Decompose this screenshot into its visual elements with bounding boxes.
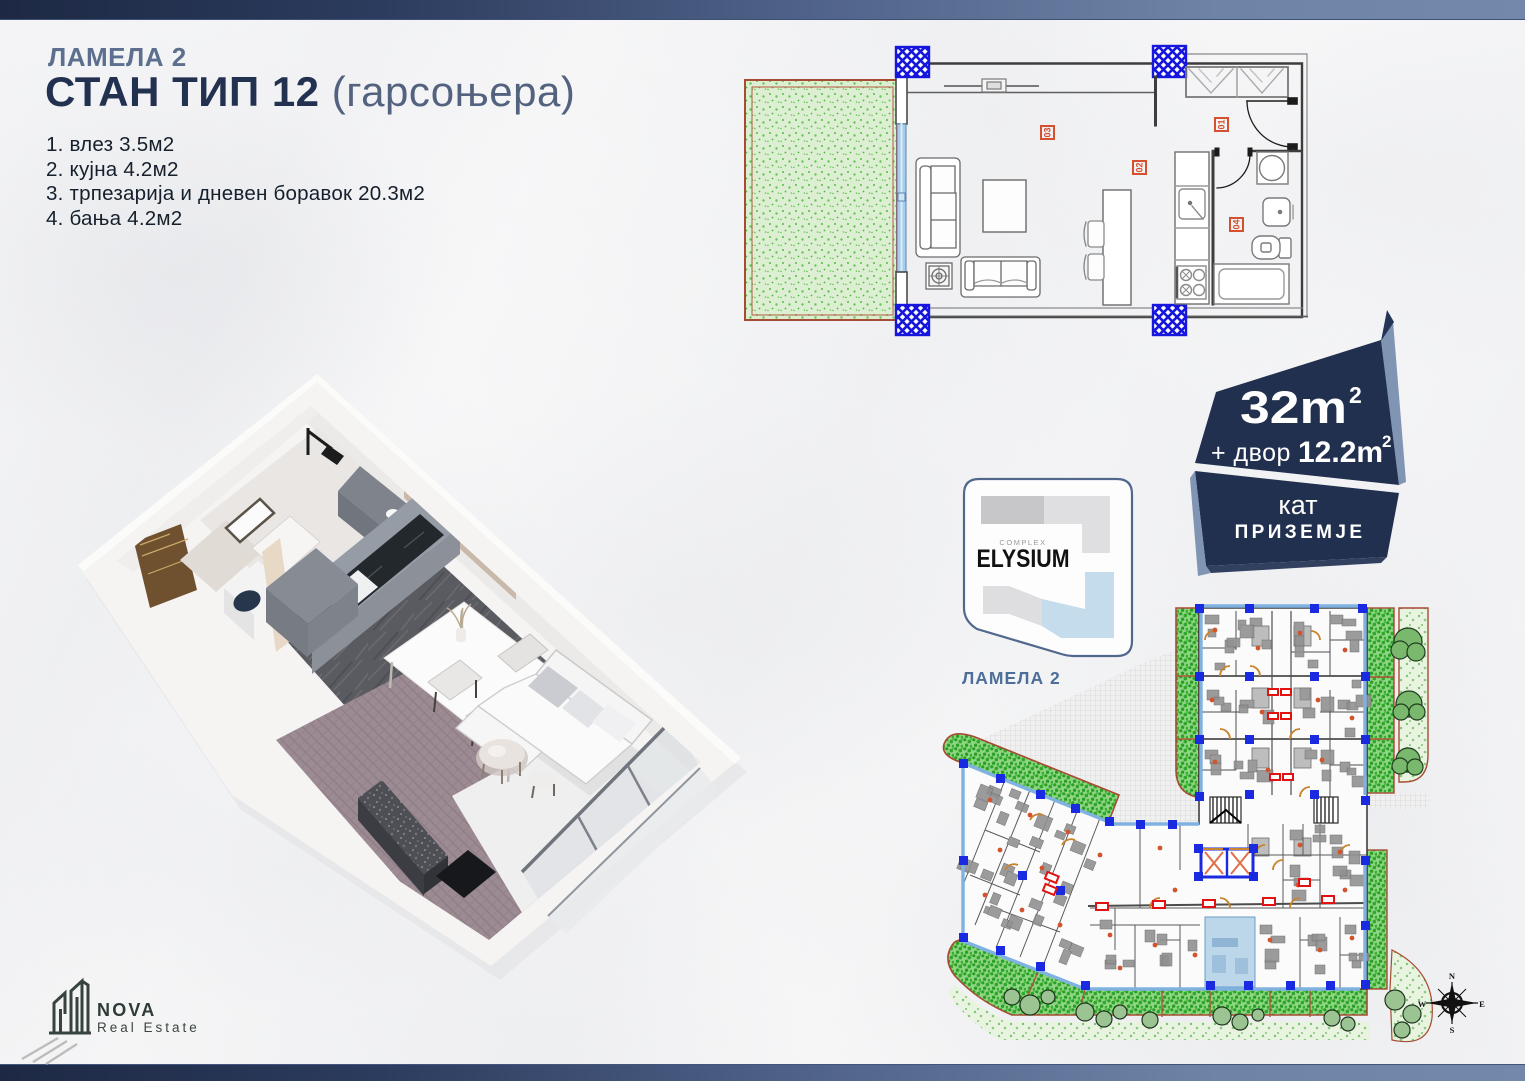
svg-text:2: 2 bbox=[1382, 432, 1391, 451]
svg-text:N: N bbox=[1449, 971, 1456, 981]
svg-text:+ двор: + двор bbox=[1211, 439, 1291, 467]
svg-text:ПРИЗЕМЈЕ: ПРИЗЕМЈЕ bbox=[1235, 522, 1366, 543]
svg-text:02: 02 bbox=[1135, 162, 1145, 172]
svg-text:32m: 32m bbox=[1240, 382, 1347, 433]
svg-text:W: W bbox=[1418, 999, 1427, 1009]
svg-text:01: 01 bbox=[1217, 119, 1227, 129]
svg-text:2: 2 bbox=[1349, 382, 1362, 408]
svg-text:ELYSIUM: ELYSIUM bbox=[977, 545, 1070, 573]
svg-text:04: 04 bbox=[1232, 219, 1242, 229]
svg-text:NOVA: NOVA bbox=[97, 1000, 156, 1020]
svg-text:E: E bbox=[1479, 999, 1485, 1009]
svg-text:S: S bbox=[1450, 1025, 1455, 1035]
svg-text:Real Estate: Real Estate bbox=[97, 1020, 200, 1035]
svg-text:03: 03 bbox=[1043, 127, 1053, 137]
svg-text:12.2m: 12.2m bbox=[1298, 436, 1383, 469]
svg-text:кат: кат bbox=[1278, 490, 1317, 520]
